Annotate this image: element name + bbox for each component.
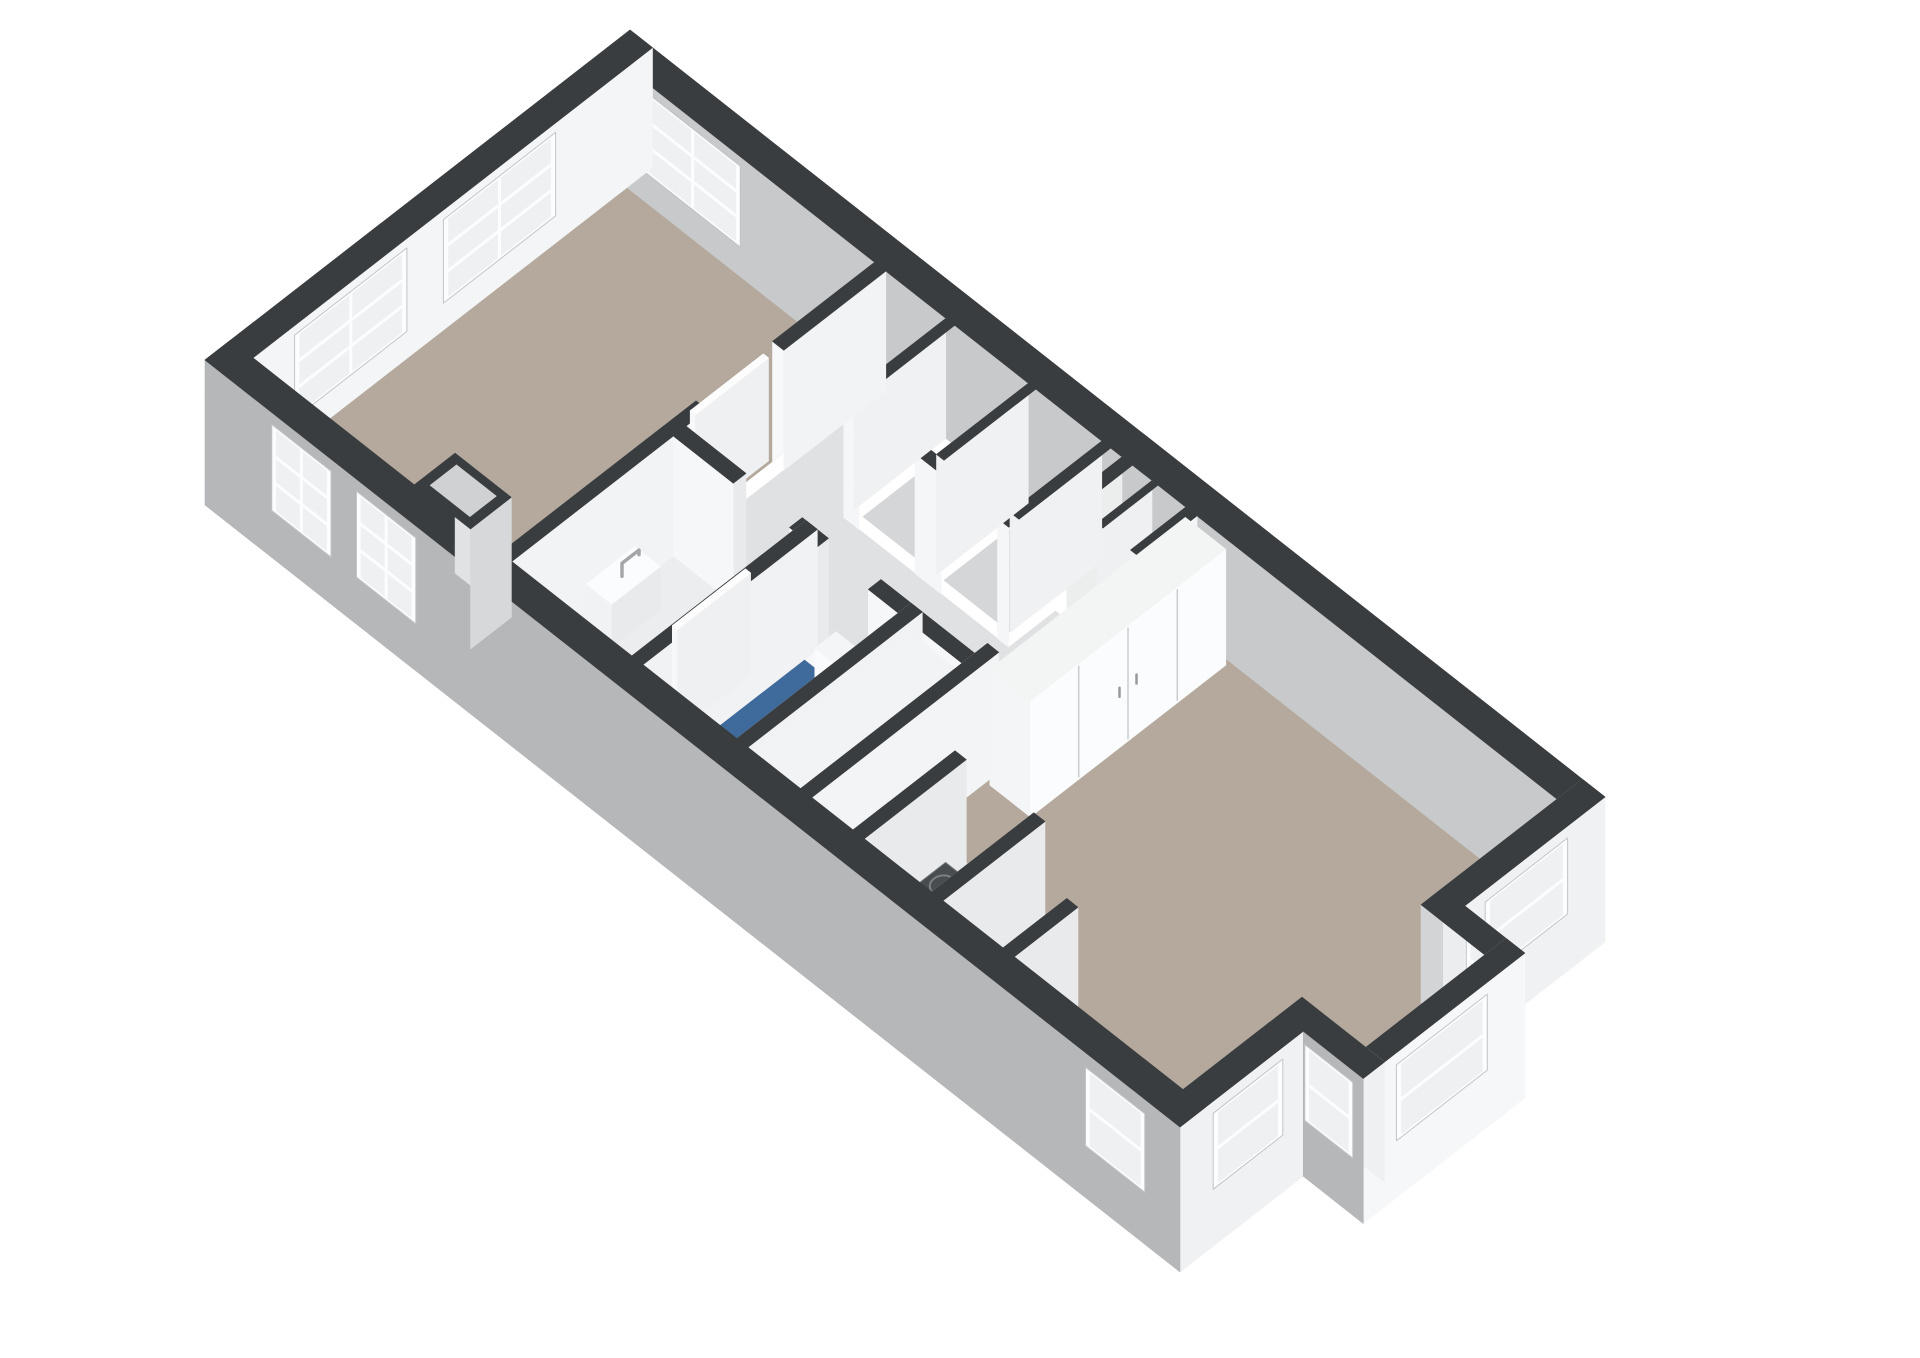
wall-closets-front-face (998, 518, 1009, 647)
floorplan-3d-render (0, 0, 1920, 1358)
floorplan-stage (0, 0, 1920, 1358)
